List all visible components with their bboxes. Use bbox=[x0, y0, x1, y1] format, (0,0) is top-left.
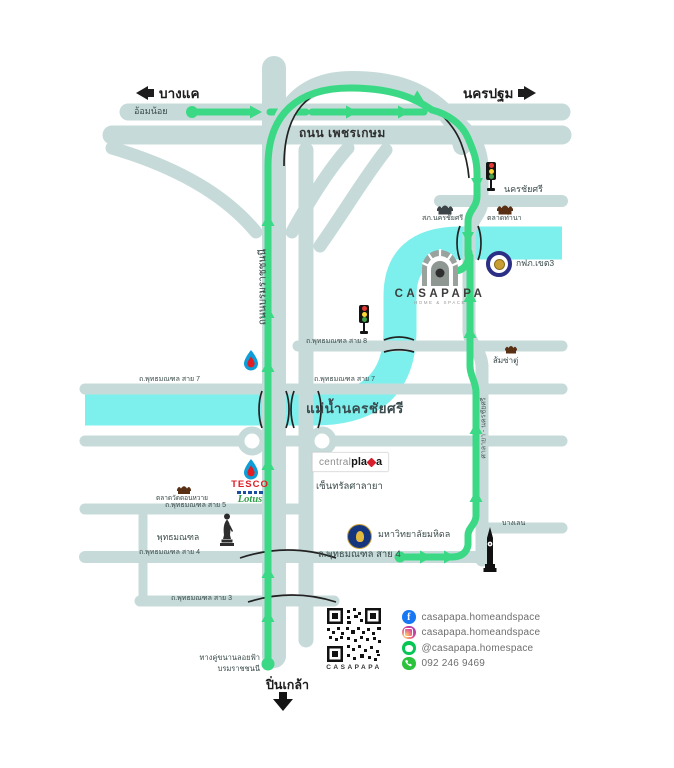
ramp-west bbox=[112, 148, 256, 232]
pea-label: กฟภ.เขต3 bbox=[516, 259, 554, 269]
road-label-bang-len: บางเลน bbox=[502, 520, 525, 528]
centralplaza-central-text: central bbox=[319, 457, 351, 468]
phone-icon bbox=[402, 657, 416, 671]
contact-block: f casapapa.homeandspace casapapa.homeand… bbox=[402, 611, 540, 670]
river-label: แม่น้ำนครชัยศรี bbox=[306, 401, 404, 417]
centralplaza-a-text: a bbox=[376, 456, 382, 468]
road-label-nakhon-chai-si: นครชัยศรี bbox=[504, 184, 543, 194]
destination-bang-khae: บางแค bbox=[136, 82, 199, 104]
bang-khae-label: บางแค bbox=[159, 82, 199, 104]
road-label-phetkasem: ถนน เพชรเกษม bbox=[299, 127, 386, 141]
traffic-light-icon bbox=[359, 305, 369, 334]
destination-nakhon-pathom: นครปฐม bbox=[463, 82, 536, 104]
mahidol-logo-icon bbox=[347, 524, 372, 549]
left-arrow-icon bbox=[136, 86, 154, 100]
don-wai-market-icon bbox=[176, 484, 192, 495]
road-label-sai5: ถ.พุทธมณฑล สาย 5 bbox=[165, 502, 226, 510]
centralplaza-logo: centralplaa bbox=[312, 452, 389, 472]
road-label-borommaratchachonnani: ถนนบรมราชชนนี bbox=[256, 249, 271, 325]
phutthamonthon-label: พุทธมณฑล bbox=[157, 533, 199, 543]
thana-market-label: ตลาดท่านา bbox=[487, 215, 522, 223]
som-sa-icon bbox=[504, 344, 518, 354]
line-icon bbox=[402, 641, 416, 655]
contact-instagram: casapapa.homeandspace bbox=[402, 627, 540, 639]
route-map: บางแค นครปฐม อ้อมน้อย ถนน เพชรเกษม นครชั… bbox=[0, 0, 674, 768]
traffic-light-icon bbox=[486, 162, 496, 191]
nakhon-pathom-label: นครปฐม bbox=[463, 82, 513, 104]
road-label-om-noi: อ้อมน้อย bbox=[134, 106, 168, 116]
road-label-salaya-nakhonchaisi: ศาลายา - นครชัยศรี bbox=[479, 397, 490, 458]
som-sa-label: ส้มซ่าตู่ bbox=[493, 356, 518, 365]
contact-phone: 092 246 9469 bbox=[402, 658, 540, 670]
qr-code-icon bbox=[327, 608, 381, 662]
road-label-sai4-west: ถ.พุทธมณฑล สาย 4 bbox=[139, 549, 200, 557]
road-label-sai7-east: ถ.พุทธมณฑล สาย 7 bbox=[314, 376, 375, 384]
centralplaza-pla-text: pla bbox=[351, 456, 367, 468]
pea-logo-icon bbox=[486, 251, 512, 277]
facebook-icon: f bbox=[402, 610, 416, 624]
tesco-lotus-logo: TESCO Lotus bbox=[228, 480, 272, 506]
gas-station-icon bbox=[242, 459, 260, 480]
police-station-icon bbox=[436, 203, 454, 215]
tesco-text: TESCO bbox=[228, 480, 272, 490]
thana-market-icon bbox=[496, 203, 514, 215]
centralplaza-thai-label: เซ็นทรัลศาลายา bbox=[316, 482, 383, 493]
road-label-sai4-east: ถ.พุทธมณฑล สาย 4 bbox=[318, 550, 401, 561]
road-label-sai8: ถ.พุทธมณฑล สาย 8 bbox=[306, 338, 367, 346]
mahidol-label: มหาวิทยาลัยมหิดล bbox=[378, 529, 450, 539]
casapapa-name: CASAPAPA bbox=[394, 288, 486, 300]
don-wai-market-label: ตลาดวัดดอนหวาย bbox=[156, 495, 208, 502]
qr-caption: CASAPAPA bbox=[326, 664, 382, 671]
casapapa-arch-logo-icon bbox=[417, 242, 463, 286]
qr-code-block: CASAPAPA bbox=[326, 608, 382, 671]
centralplaza-diamond-icon bbox=[367, 457, 377, 467]
buddha-statue-icon bbox=[219, 513, 235, 548]
police-station-label: สภ.นครชัยศรี bbox=[422, 215, 463, 223]
clock-tower-icon bbox=[482, 527, 498, 577]
casapapa-destination: CASAPAPA home & space bbox=[394, 242, 486, 305]
lotus-text: Lotus bbox=[228, 495, 272, 506]
casapapa-tagline: home & space bbox=[394, 300, 486, 305]
down-arrow-icon bbox=[270, 692, 296, 711]
gas-station-icon bbox=[242, 350, 260, 371]
road-label-sai7-west: ถ.พุทธมณฑล สาย 7 bbox=[139, 376, 200, 384]
elevated-road-label: ทางคู่ขนานลอยฟ้า บรมราชชนนี bbox=[150, 653, 260, 675]
road-label-sai3: ถ.พุทธมณฑล สาย 3 bbox=[171, 595, 232, 603]
contact-line: @casapapa.homespace bbox=[402, 642, 540, 654]
right-arrow-icon bbox=[518, 86, 536, 100]
instagram-icon bbox=[402, 626, 416, 640]
contact-facebook: f casapapa.homeandspace bbox=[402, 611, 540, 623]
